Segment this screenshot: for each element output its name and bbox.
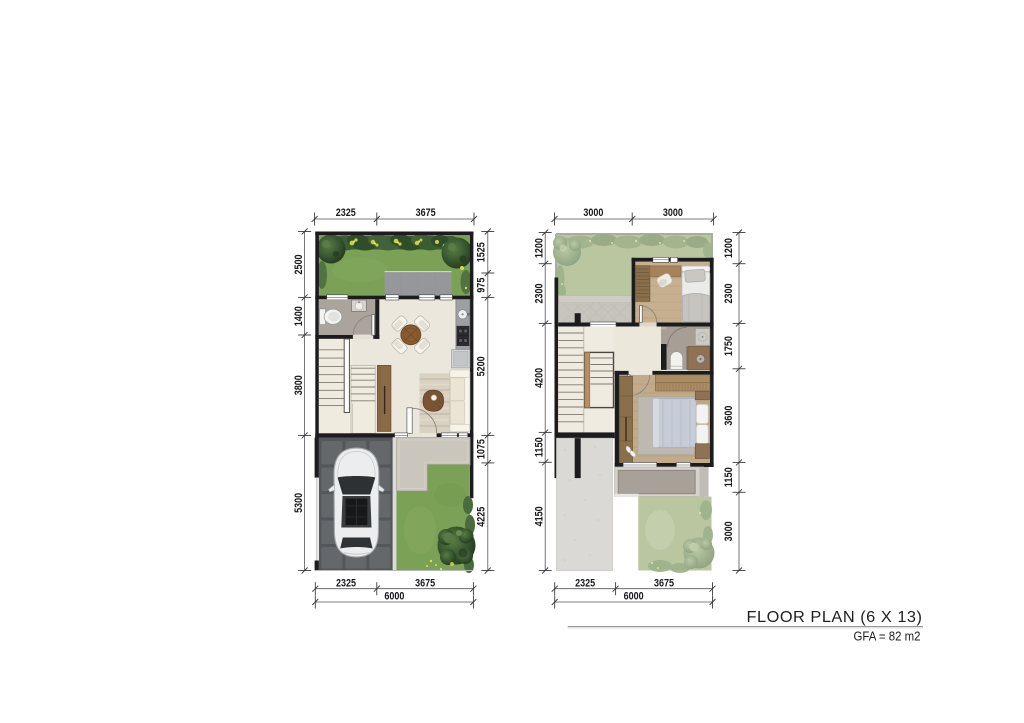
svg-text:3675: 3675 — [654, 577, 674, 589]
svg-text:6000: 6000 — [384, 591, 404, 603]
svg-text:3600: 3600 — [723, 406, 735, 426]
svg-text:3675: 3675 — [415, 577, 435, 589]
svg-text:1150: 1150 — [533, 437, 545, 457]
svg-text:2500: 2500 — [293, 255, 305, 275]
svg-text:2300: 2300 — [533, 284, 545, 304]
svg-text:4200: 4200 — [533, 368, 545, 388]
svg-text:3000: 3000 — [723, 521, 735, 541]
svg-text:GFA = 82 m2: GFA = 82 m2 — [854, 629, 921, 643]
svg-text:4150: 4150 — [533, 506, 545, 526]
svg-text:2325: 2325 — [336, 207, 356, 219]
svg-text:1525: 1525 — [476, 242, 488, 262]
svg-text:2325: 2325 — [336, 577, 356, 589]
svg-text:1150: 1150 — [723, 467, 735, 487]
svg-text:5300: 5300 — [293, 493, 305, 513]
svg-text:3000: 3000 — [663, 207, 683, 219]
svg-text:1400: 1400 — [293, 306, 305, 326]
svg-text:1750: 1750 — [723, 336, 735, 356]
svg-text:975: 975 — [476, 278, 488, 293]
svg-text:5200: 5200 — [476, 356, 488, 376]
svg-text:3000: 3000 — [583, 207, 603, 219]
svg-text:4225: 4225 — [476, 507, 488, 527]
svg-text:1075: 1075 — [476, 439, 488, 459]
svg-text:2300: 2300 — [723, 284, 735, 304]
svg-text:1200: 1200 — [723, 238, 735, 258]
svg-text:3675: 3675 — [416, 207, 436, 219]
svg-text:1200: 1200 — [533, 238, 545, 258]
svg-text:3800: 3800 — [293, 375, 305, 395]
svg-text:6000: 6000 — [624, 591, 644, 603]
svg-text:2325: 2325 — [575, 577, 595, 589]
svg-text:FLOOR PLAN (6 X 13): FLOOR PLAN (6 X 13) — [747, 609, 923, 626]
